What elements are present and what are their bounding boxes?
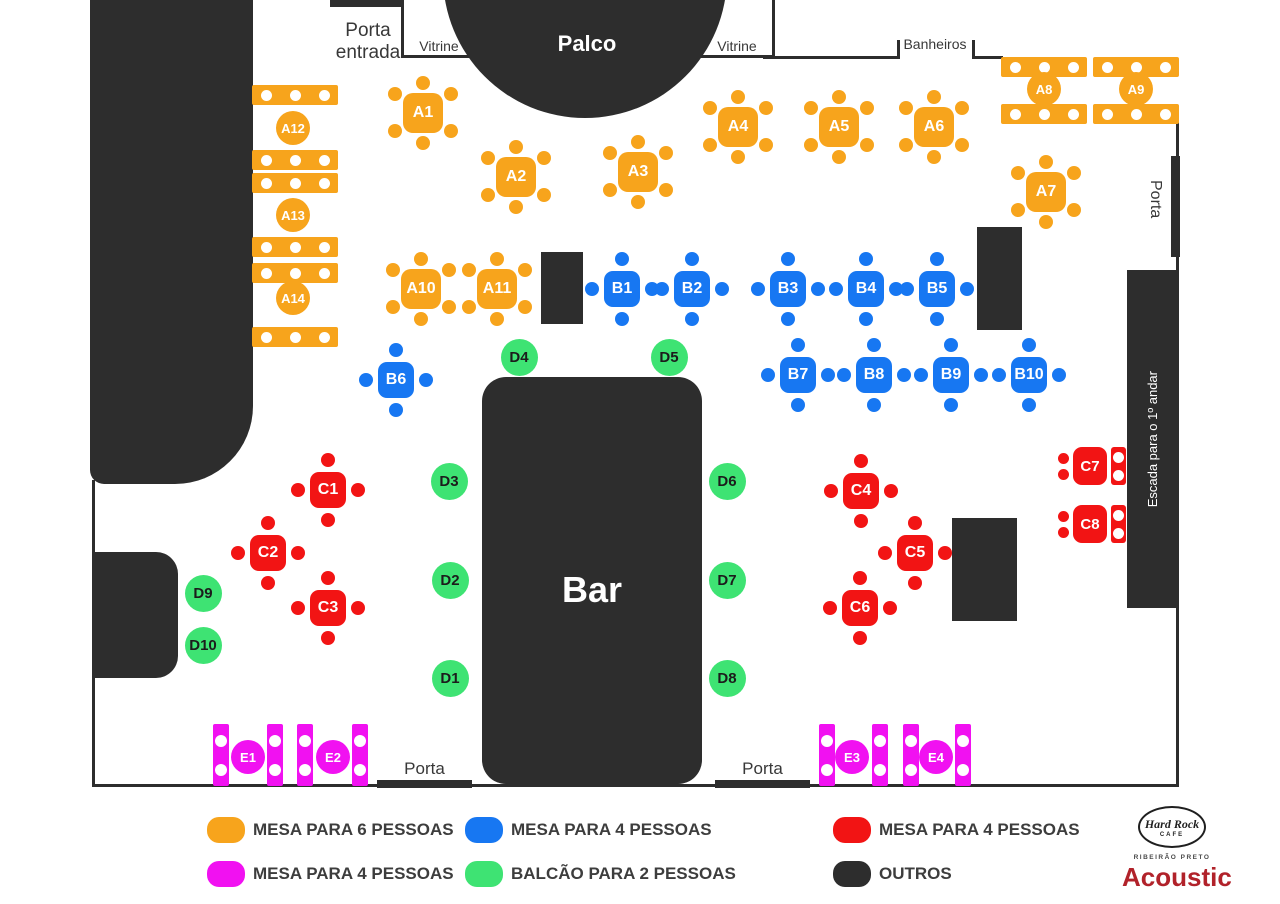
table-label: E4 bbox=[919, 740, 953, 774]
counter-D2[interactable]: D2 bbox=[432, 562, 469, 599]
seat-dot bbox=[781, 312, 795, 326]
seat-dot bbox=[859, 312, 873, 326]
seat-dot bbox=[290, 268, 301, 279]
legend-swatch bbox=[833, 861, 871, 887]
bench bbox=[1111, 447, 1126, 485]
table-A1[interactable]: A1 bbox=[377, 67, 469, 159]
legend-label: OUTROS bbox=[879, 861, 952, 887]
table-top: A1 bbox=[403, 93, 443, 133]
seat-dot bbox=[1010, 62, 1021, 73]
legend-swatch bbox=[207, 861, 245, 887]
table-top: C4 bbox=[843, 473, 879, 509]
table-A12[interactable]: A12 bbox=[252, 85, 338, 170]
seat-dot bbox=[291, 483, 305, 497]
seat-dot bbox=[319, 332, 330, 343]
seat-dot bbox=[261, 90, 272, 101]
seat-dot bbox=[416, 136, 430, 150]
seat-dot bbox=[804, 138, 818, 152]
seat-dot bbox=[854, 454, 868, 468]
table-A7[interactable]: A7 bbox=[1000, 146, 1092, 238]
other-block-2 bbox=[977, 227, 1022, 330]
seat-dot bbox=[824, 484, 838, 498]
seat-dot bbox=[955, 101, 969, 115]
seat-dot bbox=[537, 151, 551, 165]
table-top: B3 bbox=[770, 271, 806, 307]
seat-dot bbox=[414, 312, 428, 326]
bottom-right-door-label: Porta bbox=[715, 759, 810, 779]
bench bbox=[252, 263, 338, 283]
seat-dot bbox=[319, 268, 330, 279]
bar-label: Bar bbox=[562, 551, 622, 611]
seat-dot bbox=[518, 263, 532, 277]
seat-dot bbox=[444, 87, 458, 101]
seat-dot bbox=[269, 735, 281, 747]
seat-dot bbox=[837, 368, 851, 382]
bench bbox=[297, 724, 313, 786]
seat-dot bbox=[1113, 452, 1124, 463]
seat-dot bbox=[389, 403, 403, 417]
seat-dot bbox=[481, 151, 495, 165]
table-B10[interactable]: B10 bbox=[983, 329, 1075, 421]
legend-swatch bbox=[833, 817, 871, 843]
brand-city: RIBEIRÃO PRETO bbox=[1122, 854, 1222, 861]
counter-D4[interactable]: D4 bbox=[501, 339, 538, 376]
table-top: A7 bbox=[1026, 172, 1066, 212]
seat-dot bbox=[781, 252, 795, 266]
staircase-label: Escada para o 1º andar bbox=[1145, 371, 1160, 507]
bench bbox=[252, 173, 338, 193]
seat-dot bbox=[1058, 511, 1069, 522]
seat-dot bbox=[386, 300, 400, 314]
table-A14[interactable]: A14 bbox=[252, 263, 338, 347]
seat-dot bbox=[823, 601, 837, 615]
seat-dot bbox=[518, 300, 532, 314]
legend-swatch bbox=[465, 817, 503, 843]
table-top: A4 bbox=[718, 107, 758, 147]
right-door-label: Porta bbox=[1146, 180, 1164, 218]
seat-dot bbox=[388, 87, 402, 101]
table-A9[interactable]: A9 bbox=[1093, 57, 1179, 124]
table-A5[interactable]: A5 bbox=[793, 81, 885, 173]
bench bbox=[1001, 104, 1087, 124]
seat-dot bbox=[261, 268, 272, 279]
table-top: A2 bbox=[496, 157, 536, 197]
bar-counter: Bar bbox=[482, 377, 702, 784]
seat-dot bbox=[388, 124, 402, 138]
seat-dot bbox=[853, 631, 867, 645]
table-E4[interactable]: E4 bbox=[903, 724, 971, 786]
seat-dot bbox=[319, 178, 330, 189]
seat-dot bbox=[261, 155, 272, 166]
seat-dot bbox=[290, 155, 301, 166]
table-C6[interactable]: C6 bbox=[814, 562, 906, 654]
table-label: E3 bbox=[835, 740, 869, 774]
seat-dot bbox=[585, 282, 599, 296]
seat-dot bbox=[1068, 62, 1079, 73]
seat-dot bbox=[291, 601, 305, 615]
seat-dot bbox=[832, 150, 846, 164]
table-label: A8 bbox=[1027, 72, 1061, 106]
seat-dot bbox=[1160, 62, 1171, 73]
table-C7[interactable]: C7 bbox=[1056, 437, 1128, 495]
table-A13[interactable]: A13 bbox=[252, 173, 338, 257]
table-top: B8 bbox=[856, 357, 892, 393]
wall-top-right-a bbox=[763, 56, 899, 59]
seat-dot bbox=[992, 368, 1006, 382]
entrance-label: Porta entrada bbox=[322, 20, 414, 64]
seat-dot bbox=[759, 138, 773, 152]
table-label: A9 bbox=[1119, 72, 1153, 106]
seat-dot bbox=[1113, 528, 1124, 539]
seat-dot bbox=[462, 300, 476, 314]
seat-dot bbox=[321, 513, 335, 527]
seat-dot bbox=[290, 178, 301, 189]
seat-dot bbox=[359, 373, 373, 387]
table-label: E1 bbox=[231, 740, 265, 774]
seat-dot bbox=[761, 368, 775, 382]
seat-dot bbox=[759, 101, 773, 115]
seat-dot bbox=[261, 332, 272, 343]
legend-label: MESA PARA 4 PESSOAS bbox=[879, 817, 1080, 843]
bench bbox=[819, 724, 835, 786]
table-top: A3 bbox=[618, 152, 658, 192]
seat-dot bbox=[261, 242, 272, 253]
table-top: A5 bbox=[819, 107, 859, 147]
seat-dot bbox=[319, 242, 330, 253]
seat-dot bbox=[389, 343, 403, 357]
seat-dot bbox=[603, 183, 617, 197]
seat-dot bbox=[537, 188, 551, 202]
table-B2[interactable]: B2 bbox=[646, 243, 738, 335]
seat-dot bbox=[321, 453, 335, 467]
bench bbox=[352, 724, 368, 786]
bench bbox=[252, 150, 338, 170]
seat-dot bbox=[659, 183, 673, 197]
table-top: B10 bbox=[1011, 357, 1047, 393]
seat-dot bbox=[419, 373, 433, 387]
table-label: A13 bbox=[276, 198, 310, 232]
seat-dot bbox=[1022, 398, 1036, 412]
seat-dot bbox=[490, 312, 504, 326]
seat-dot bbox=[908, 516, 922, 530]
seat-dot bbox=[351, 601, 365, 615]
table-B6[interactable]: B6 bbox=[350, 334, 442, 426]
seat-dot bbox=[960, 282, 974, 296]
counter-D3[interactable]: D3 bbox=[431, 463, 468, 500]
seat-dot bbox=[261, 576, 275, 590]
seat-dot bbox=[1010, 109, 1021, 120]
table-top: B1 bbox=[604, 271, 640, 307]
table-A3[interactable]: A3 bbox=[592, 126, 684, 218]
seat-dot bbox=[416, 76, 430, 90]
seat-dot bbox=[905, 764, 917, 776]
seat-dot bbox=[603, 146, 617, 160]
seat-dot bbox=[509, 140, 523, 154]
bottom-left-door-label: Porta bbox=[377, 759, 472, 779]
staircase: Escada para o 1º andar bbox=[1127, 270, 1178, 608]
legend-swatch bbox=[465, 861, 503, 887]
bench bbox=[252, 237, 338, 257]
seat-dot bbox=[1113, 470, 1124, 481]
counter-D6[interactable]: D6 bbox=[709, 463, 746, 500]
bench bbox=[1111, 505, 1126, 543]
seat-dot bbox=[231, 546, 245, 560]
seat-dot bbox=[914, 368, 928, 382]
seat-dot bbox=[859, 252, 873, 266]
seat-dot bbox=[290, 332, 301, 343]
seat-dot bbox=[1068, 109, 1079, 120]
stage bbox=[443, 0, 727, 118]
seat-dot bbox=[444, 124, 458, 138]
table-top: C8 bbox=[1073, 505, 1107, 543]
seat-dot bbox=[731, 150, 745, 164]
seat-dot bbox=[930, 312, 944, 326]
seat-dot bbox=[631, 195, 645, 209]
table-B5[interactable]: B5 bbox=[891, 243, 983, 335]
seat-dot bbox=[1039, 155, 1053, 169]
table-A2[interactable]: A2 bbox=[470, 131, 562, 223]
seat-dot bbox=[829, 282, 843, 296]
seat-dot bbox=[791, 398, 805, 412]
bottom-left-door-bar bbox=[377, 780, 472, 788]
seat-dot bbox=[261, 178, 272, 189]
table-C3[interactable]: C3 bbox=[282, 562, 374, 654]
wall-left-small-block bbox=[92, 552, 178, 678]
seat-dot bbox=[1102, 109, 1113, 120]
banheiros-label: Banheiros bbox=[898, 36, 972, 52]
seat-dot bbox=[1131, 62, 1142, 73]
seat-dot bbox=[1039, 215, 1053, 229]
seat-dot bbox=[703, 138, 717, 152]
table-E3[interactable]: E3 bbox=[819, 724, 888, 786]
seat-dot bbox=[883, 601, 897, 615]
seat-dot bbox=[905, 735, 917, 747]
seat-dot bbox=[944, 398, 958, 412]
seat-dot bbox=[615, 252, 629, 266]
seat-dot bbox=[930, 252, 944, 266]
counter-D9[interactable]: D9 bbox=[185, 575, 222, 612]
seat-dot bbox=[715, 282, 729, 296]
seat-dot bbox=[659, 146, 673, 160]
seat-dot bbox=[269, 764, 281, 776]
vitrine-left-label: Vitrine bbox=[410, 38, 468, 54]
counter-D5[interactable]: D5 bbox=[651, 339, 688, 376]
seat-dot bbox=[703, 101, 717, 115]
seat-dot bbox=[860, 138, 874, 152]
table-label: A14 bbox=[276, 281, 310, 315]
bottom-right-door-bar bbox=[715, 780, 810, 788]
seat-dot bbox=[299, 735, 311, 747]
seat-dot bbox=[957, 764, 969, 776]
table-A4[interactable]: A4 bbox=[692, 81, 784, 173]
legend-label: MESA PARA 4 PESSOAS bbox=[253, 861, 454, 887]
seat-dot bbox=[1131, 109, 1142, 120]
brand-event: Acoustic bbox=[1122, 862, 1222, 893]
seat-dot bbox=[490, 252, 504, 266]
bench bbox=[252, 85, 338, 105]
seat-dot bbox=[481, 188, 495, 202]
brand-block: Hard Rock CAFE RIBEIRÃO PRETO Acoustic bbox=[1122, 806, 1222, 893]
seat-dot bbox=[874, 764, 886, 776]
seat-dot bbox=[685, 252, 699, 266]
floor-plan: Bar Escada para o 1º andar Porta entrada… bbox=[0, 0, 1280, 904]
seat-dot bbox=[321, 571, 335, 585]
seat-dot bbox=[299, 764, 311, 776]
seat-dot bbox=[414, 252, 428, 266]
seat-dot bbox=[319, 90, 330, 101]
legend-label: MESA PARA 6 PESSOAS bbox=[253, 817, 454, 843]
brand-name: Hard Rock bbox=[1145, 817, 1199, 832]
bench bbox=[252, 327, 338, 347]
seat-dot bbox=[319, 155, 330, 166]
seat-dot bbox=[1039, 109, 1050, 120]
table-top: C3 bbox=[310, 590, 346, 626]
seat-dot bbox=[867, 338, 881, 352]
table-top: A6 bbox=[914, 107, 954, 147]
seat-dot bbox=[1058, 453, 1069, 464]
right-door-bar bbox=[1171, 156, 1180, 257]
seat-dot bbox=[900, 282, 914, 296]
seat-dot bbox=[261, 516, 275, 530]
counter-D1[interactable]: D1 bbox=[432, 660, 469, 697]
table-top: B7 bbox=[780, 357, 816, 393]
seat-dot bbox=[1022, 338, 1036, 352]
seat-dot bbox=[853, 571, 867, 585]
seat-dot bbox=[509, 200, 523, 214]
seat-dot bbox=[908, 576, 922, 590]
seat-dot bbox=[938, 546, 952, 560]
seat-dot bbox=[291, 546, 305, 560]
seat-dot bbox=[354, 764, 366, 776]
seat-dot bbox=[655, 282, 669, 296]
seat-dot bbox=[685, 312, 699, 326]
table-top: C1 bbox=[310, 472, 346, 508]
seat-dot bbox=[354, 735, 366, 747]
other-block-3 bbox=[952, 518, 1017, 621]
wall-left-block bbox=[90, 0, 253, 484]
table-top: B5 bbox=[919, 271, 955, 307]
seat-dot bbox=[1039, 62, 1050, 73]
seat-dot bbox=[957, 735, 969, 747]
seat-dot bbox=[351, 483, 365, 497]
table-top: A10 bbox=[401, 269, 441, 309]
bench bbox=[213, 724, 229, 786]
seat-dot bbox=[1052, 368, 1066, 382]
table-label: E2 bbox=[316, 740, 350, 774]
seat-dot bbox=[1067, 203, 1081, 217]
seat-dot bbox=[878, 546, 892, 560]
table-top: B4 bbox=[848, 271, 884, 307]
seat-dot bbox=[1067, 166, 1081, 180]
seat-dot bbox=[821, 735, 833, 747]
table-label: A12 bbox=[276, 111, 310, 145]
table-E2[interactable]: E2 bbox=[297, 724, 368, 786]
seat-dot bbox=[867, 398, 881, 412]
bench bbox=[267, 724, 283, 786]
seat-dot bbox=[927, 150, 941, 164]
bench bbox=[903, 724, 919, 786]
vitrine-right-label: Vitrine bbox=[708, 38, 766, 54]
seat-dot bbox=[854, 514, 868, 528]
seat-dot bbox=[731, 90, 745, 104]
seat-dot bbox=[1011, 203, 1025, 217]
seat-dot bbox=[791, 338, 805, 352]
table-top: B9 bbox=[933, 357, 969, 393]
table-top: B2 bbox=[674, 271, 710, 307]
brand-cafe: CAFE bbox=[1160, 832, 1184, 838]
seat-dot bbox=[462, 263, 476, 277]
seat-dot bbox=[215, 735, 227, 747]
seat-dot bbox=[832, 90, 846, 104]
wall-top-right-b bbox=[972, 56, 1003, 59]
seat-dot bbox=[944, 338, 958, 352]
seat-dot bbox=[1058, 527, 1069, 538]
seat-dot bbox=[884, 484, 898, 498]
counter-D7[interactable]: D7 bbox=[709, 562, 746, 599]
seat-dot bbox=[899, 138, 913, 152]
seat-dot bbox=[927, 90, 941, 104]
hard-rock-logo: Hard Rock CAFE bbox=[1138, 806, 1206, 848]
table-E1[interactable]: E1 bbox=[213, 724, 283, 786]
seat-dot bbox=[821, 764, 833, 776]
seat-dot bbox=[1160, 109, 1171, 120]
seat-dot bbox=[290, 90, 301, 101]
table-top: C6 bbox=[842, 590, 878, 626]
seat-dot bbox=[751, 282, 765, 296]
legend-swatch bbox=[207, 817, 245, 843]
seat-dot bbox=[955, 138, 969, 152]
entrance-door-bar bbox=[330, 0, 403, 7]
bench bbox=[955, 724, 971, 786]
table-A8[interactable]: A8 bbox=[1001, 57, 1087, 124]
table-A6[interactable]: A6 bbox=[888, 81, 980, 173]
bench bbox=[1093, 104, 1179, 124]
legend-label: MESA PARA 4 PESSOAS bbox=[511, 817, 712, 843]
seat-dot bbox=[804, 101, 818, 115]
table-C8[interactable]: C8 bbox=[1056, 495, 1128, 553]
counter-D8[interactable]: D8 bbox=[709, 660, 746, 697]
seat-dot bbox=[1102, 62, 1113, 73]
seat-dot bbox=[1058, 469, 1069, 480]
legend-label: BALCÃO PARA 2 PESSOAS bbox=[511, 861, 736, 887]
table-top: C2 bbox=[250, 535, 286, 571]
seat-dot bbox=[615, 312, 629, 326]
seat-dot bbox=[1011, 166, 1025, 180]
seat-dot bbox=[899, 101, 913, 115]
seat-dot bbox=[631, 135, 645, 149]
table-top: B6 bbox=[378, 362, 414, 398]
table-top: C7 bbox=[1073, 447, 1107, 485]
bench bbox=[872, 724, 888, 786]
counter-D10[interactable]: D10 bbox=[185, 627, 222, 664]
table-A11[interactable]: A11 bbox=[451, 243, 543, 335]
seat-dot bbox=[860, 101, 874, 115]
stage-label: Palco bbox=[527, 31, 647, 57]
table-top: A11 bbox=[477, 269, 517, 309]
seat-dot bbox=[321, 631, 335, 645]
seat-dot bbox=[290, 242, 301, 253]
seat-dot bbox=[215, 764, 227, 776]
seat-dot bbox=[874, 735, 886, 747]
seat-dot bbox=[386, 263, 400, 277]
seat-dot bbox=[1113, 510, 1124, 521]
